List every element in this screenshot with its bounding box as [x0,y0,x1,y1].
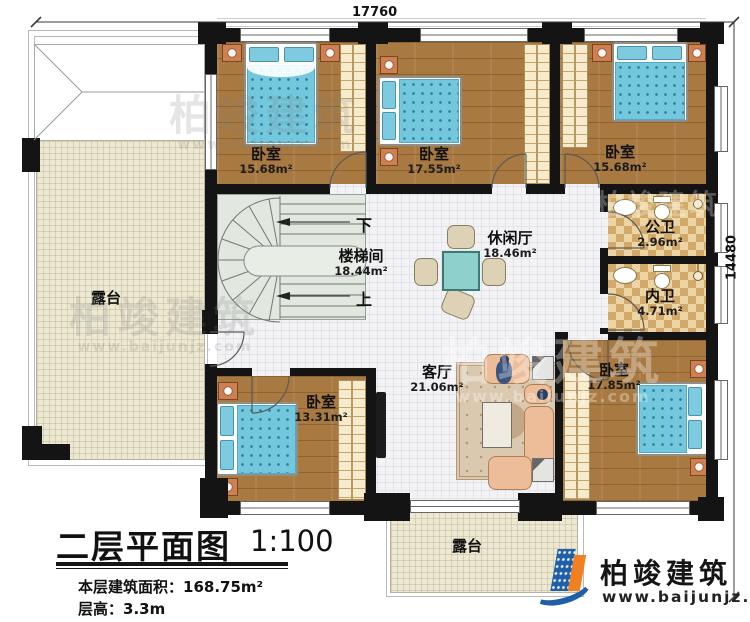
chair [482,258,506,286]
wall [608,332,718,340]
bed-pillow [617,46,647,60]
bed-pillow [220,440,234,470]
wall [600,248,608,294]
plan-title: 二层平面图 [56,520,231,568]
sofa [488,456,532,490]
column [700,22,724,44]
corner-table [532,458,554,482]
wall [205,368,252,376]
eave-lines [217,18,706,28]
shower-head [693,271,703,281]
tv [376,392,386,458]
roof-below [34,44,205,141]
column [22,444,70,460]
bed-mattress [639,385,687,453]
wall [366,184,492,194]
window [596,501,690,515]
logo-company-name: 柏竣建筑 [600,552,732,592]
room-label-bath-ensuite: 内卫 4.71m² [637,288,682,318]
dimension-right: 14480 [725,228,740,288]
stair-up-label: 上 [356,286,372,310]
nightstand [222,44,242,62]
bed-pillow [220,406,234,436]
bed-pillow [249,47,279,62]
window [420,28,528,42]
room-label-living: 客厅 21.06m² [410,364,463,394]
floor-height-row: 层高：3.3m [78,598,165,619]
chair [414,258,438,286]
room-label-bedroom3: 卧室 15.68m² [593,144,646,174]
bed-pillow [382,112,396,140]
sink [613,267,637,284]
column [202,310,218,334]
window [240,28,330,42]
bed-pillow [382,81,396,109]
window [714,86,728,152]
floor-height-value: 3.3m [123,600,165,618]
leisure-table [442,251,480,291]
toilet [653,265,671,272]
wardrobe [562,44,588,148]
nightstand [218,382,238,400]
wall [600,184,718,194]
title-underline-thin [56,568,288,569]
toilet [653,196,671,203]
room-label-bedroom1: 卧室 15.68m² [239,146,292,176]
wall [366,42,376,184]
wall [290,368,376,376]
floor-area-value: 168.75m² [183,578,263,596]
plant [537,389,548,400]
person-head [500,355,509,364]
stair-down-label: 下 [356,212,372,236]
column [518,493,562,521]
room-label-bath-public: 公卫 2.96m² [637,219,682,249]
bed-mattress [399,79,459,143]
room-label-leisure: 休闲厅 18.46m² [483,230,536,260]
room-label-bedroom2: 卧室 17.55m² [407,146,460,176]
column [364,493,410,521]
column [542,22,572,44]
wall [205,28,217,312]
column [200,478,228,518]
coffee-table [482,402,512,448]
window [240,501,330,515]
floor-area-label: 本层建筑面积： [78,578,183,596]
wall [555,332,563,515]
plan-scale: 1:100 [250,524,334,558]
title-underline [56,562,288,566]
wall [600,328,608,334]
wall [526,184,565,194]
room-label-bedroom4: 卧室 13.31m² [294,394,347,424]
column [22,138,40,172]
bed-pillow [688,420,702,449]
column [358,22,388,44]
bed-pillow [284,47,314,62]
wall [550,42,560,184]
nightstand [380,148,398,166]
room-label-balcony-left: 露台 [91,290,121,307]
column [198,22,226,44]
bed-pillow [688,387,702,416]
nightstand [320,44,340,62]
nightstand [592,44,612,62]
wall [600,256,706,264]
column [698,497,724,521]
bed-mattress [615,62,685,120]
chair [447,225,475,249]
window [205,74,217,170]
window [714,380,728,460]
floor-area-row: 本层建筑面积：168.75m² [78,576,263,597]
room-label-bedroom5: 卧室 17.85m² [587,362,640,392]
window [584,28,678,42]
nightstand [688,44,706,62]
room-label-balcony-bottom: 露台 [452,538,482,555]
sliding-door [410,500,520,513]
room-label-staircase: 楼梯间 18.44m² [334,248,387,278]
wardrobe [340,44,366,152]
sink [613,199,637,216]
wardrobe [564,372,590,500]
shower-head [693,199,703,209]
nightstand [380,56,398,74]
wall [205,184,330,194]
corner-table [532,356,554,380]
dimension-top: 17760 [352,5,397,20]
logo-website: www.baijunjz.com [602,588,750,606]
wall [600,194,608,212]
bed-mattress [237,405,296,474]
bed-pillow [652,46,682,60]
wardrobe [524,44,550,184]
floor-height-label: 层高： [78,600,123,618]
floor-plan-canvas: 卧室 15.68m² 卧室 17.55m² 卧室 15.68m² 楼梯间 18.… [0,0,750,622]
